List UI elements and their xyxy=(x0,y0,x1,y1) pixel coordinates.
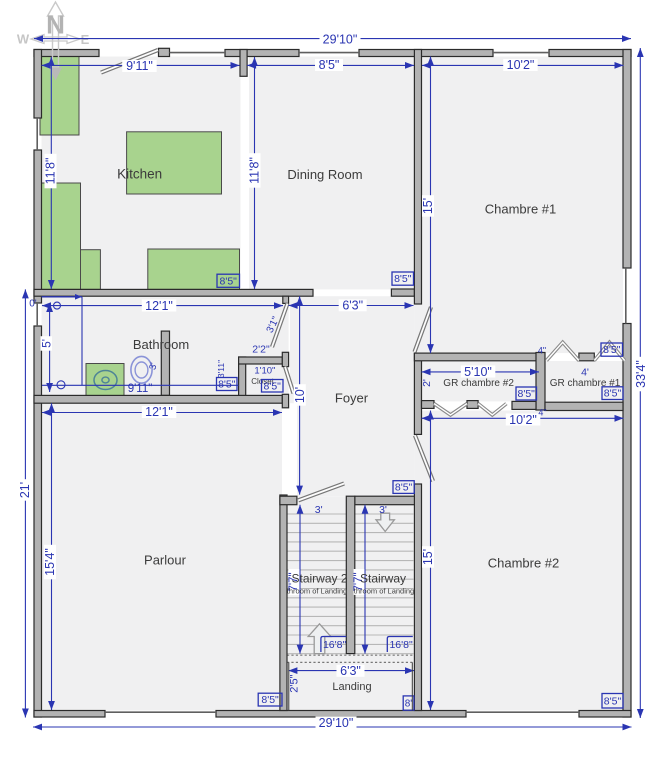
svg-text:0': 0' xyxy=(29,299,37,310)
svg-text:W: W xyxy=(17,32,30,47)
svg-text:11'8": 11'8" xyxy=(44,158,58,185)
svg-text:33'4": 33'4" xyxy=(634,360,648,388)
svg-text:8'5": 8'5" xyxy=(319,58,340,72)
svg-text:6'3": 6'3" xyxy=(340,664,361,678)
svg-text:8'5": 8'5" xyxy=(604,695,622,707)
svg-text:throom of Landing: throom of Landing xyxy=(354,587,414,596)
svg-text:8'5": 8'5" xyxy=(604,388,622,400)
svg-text:2': 2' xyxy=(421,379,433,387)
svg-text:12'1": 12'1" xyxy=(145,405,173,419)
svg-text:5'10": 5'10" xyxy=(464,365,492,379)
svg-text:29'10": 29'10" xyxy=(323,33,358,47)
svg-text:10'2": 10'2" xyxy=(509,413,537,427)
svg-text:8'5": 8'5" xyxy=(517,388,535,400)
svg-text:1'10": 1'10" xyxy=(254,366,275,377)
svg-text:6'3": 6'3" xyxy=(342,299,363,313)
svg-text:5': 5' xyxy=(39,339,53,348)
svg-text:11'8": 11'8" xyxy=(248,157,262,184)
svg-text:16'8": 16'8" xyxy=(389,639,413,651)
svg-text:3': 3' xyxy=(379,504,387,516)
svg-text:E: E xyxy=(81,32,90,47)
svg-text:Parlour: Parlour xyxy=(144,553,187,568)
svg-text:29'10": 29'10" xyxy=(319,716,354,730)
svg-text:15': 15' xyxy=(421,198,435,214)
svg-text:2'2": 2'2" xyxy=(252,343,270,355)
svg-text:Bathroom: Bathroom xyxy=(133,337,189,352)
svg-text:3'11": 3'11" xyxy=(216,360,226,378)
svg-text:12'1": 12'1" xyxy=(145,299,173,313)
svg-text:Stairway 2: Stairway 2 xyxy=(291,572,347,586)
svg-text:15'4": 15'4" xyxy=(43,548,57,576)
svg-text:Kitchen: Kitchen xyxy=(117,167,162,182)
svg-text:Landing: Landing xyxy=(332,681,371,693)
svg-text:8'5": 8'5" xyxy=(219,275,237,287)
svg-text:8'5": 8'5" xyxy=(394,273,412,285)
svg-text:8'5": 8'5" xyxy=(218,379,236,391)
svg-text:8'5": 8'5" xyxy=(603,344,621,356)
svg-text:N: N xyxy=(46,10,65,40)
svg-text:8': 8' xyxy=(405,698,413,709)
svg-text:Stairway: Stairway xyxy=(360,572,406,586)
svg-text:10': 10' xyxy=(293,387,307,403)
svg-text:4": 4" xyxy=(538,346,546,356)
svg-text:Dining Room: Dining Room xyxy=(287,167,362,182)
svg-text:GR chambre #1: GR chambre #1 xyxy=(550,378,621,389)
svg-text:8'5": 8'5" xyxy=(395,482,413,494)
svg-text:throom of Landing: throom of Landing xyxy=(287,587,347,596)
svg-text:16'8": 16'8" xyxy=(323,639,347,651)
svg-text:GR chambre #2: GR chambre #2 xyxy=(443,378,514,389)
svg-text:8'5": 8'5" xyxy=(263,380,281,392)
svg-text:21': 21' xyxy=(18,482,32,498)
svg-text:9'11": 9'11" xyxy=(126,59,153,73)
svg-text:3': 3' xyxy=(315,504,323,516)
svg-text:10'2": 10'2" xyxy=(507,58,535,72)
svg-text:Foyer: Foyer xyxy=(335,391,369,406)
svg-text:8'5": 8'5" xyxy=(261,694,279,706)
svg-text:Chambre #1: Chambre #1 xyxy=(485,202,557,217)
svg-text:Chambre #2: Chambre #2 xyxy=(488,556,560,571)
svg-text:2'5": 2'5" xyxy=(289,674,301,692)
svg-text:4': 4' xyxy=(581,366,589,378)
svg-text:4": 4" xyxy=(538,408,546,418)
svg-text:9'11": 9'11" xyxy=(128,383,153,395)
svg-text:15': 15' xyxy=(421,549,435,565)
